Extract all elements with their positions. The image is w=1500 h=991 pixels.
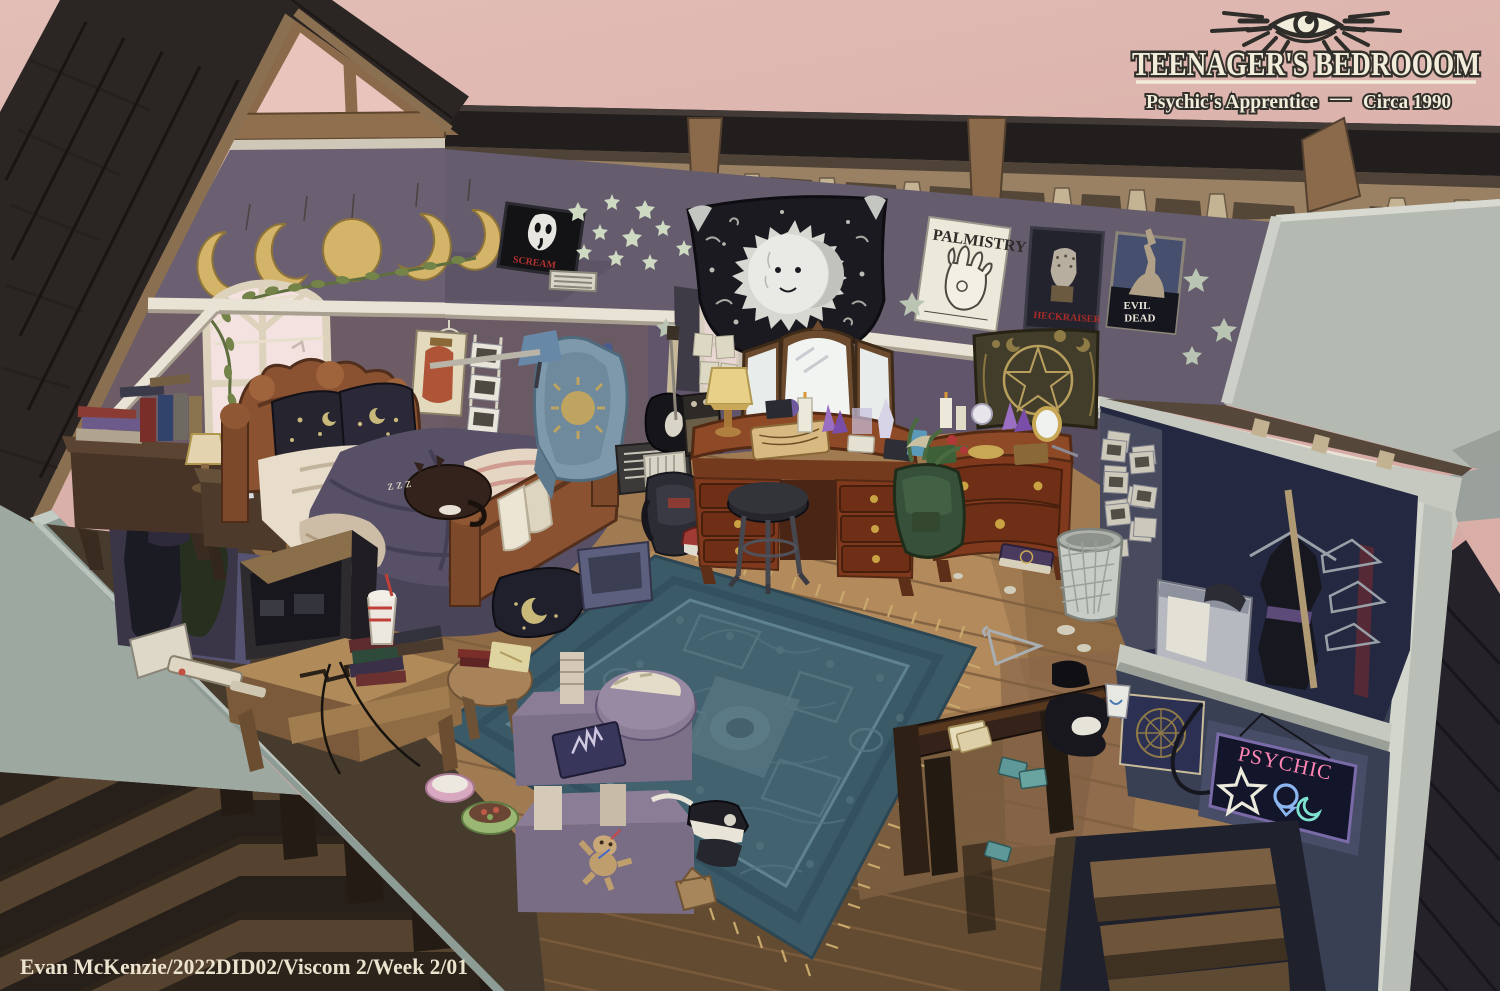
svg-text:—: — bbox=[1329, 87, 1351, 109]
svg-text:TEENAGER'S BEDROOOM: TEENAGER'S BEDROOOM bbox=[1132, 46, 1480, 83]
svg-text:EVIL: EVIL bbox=[1124, 300, 1151, 312]
svg-text:Evan McKenzie/2022DID02/Viscom: Evan McKenzie/2022DID02/Viscom 2/Week 2/… bbox=[20, 954, 468, 979]
svg-text:Psychic's Apprentice: Psychic's Apprentice bbox=[1146, 91, 1318, 113]
svg-text:DEAD: DEAD bbox=[1124, 312, 1155, 324]
svg-text:Circa 1990: Circa 1990 bbox=[1363, 91, 1451, 113]
